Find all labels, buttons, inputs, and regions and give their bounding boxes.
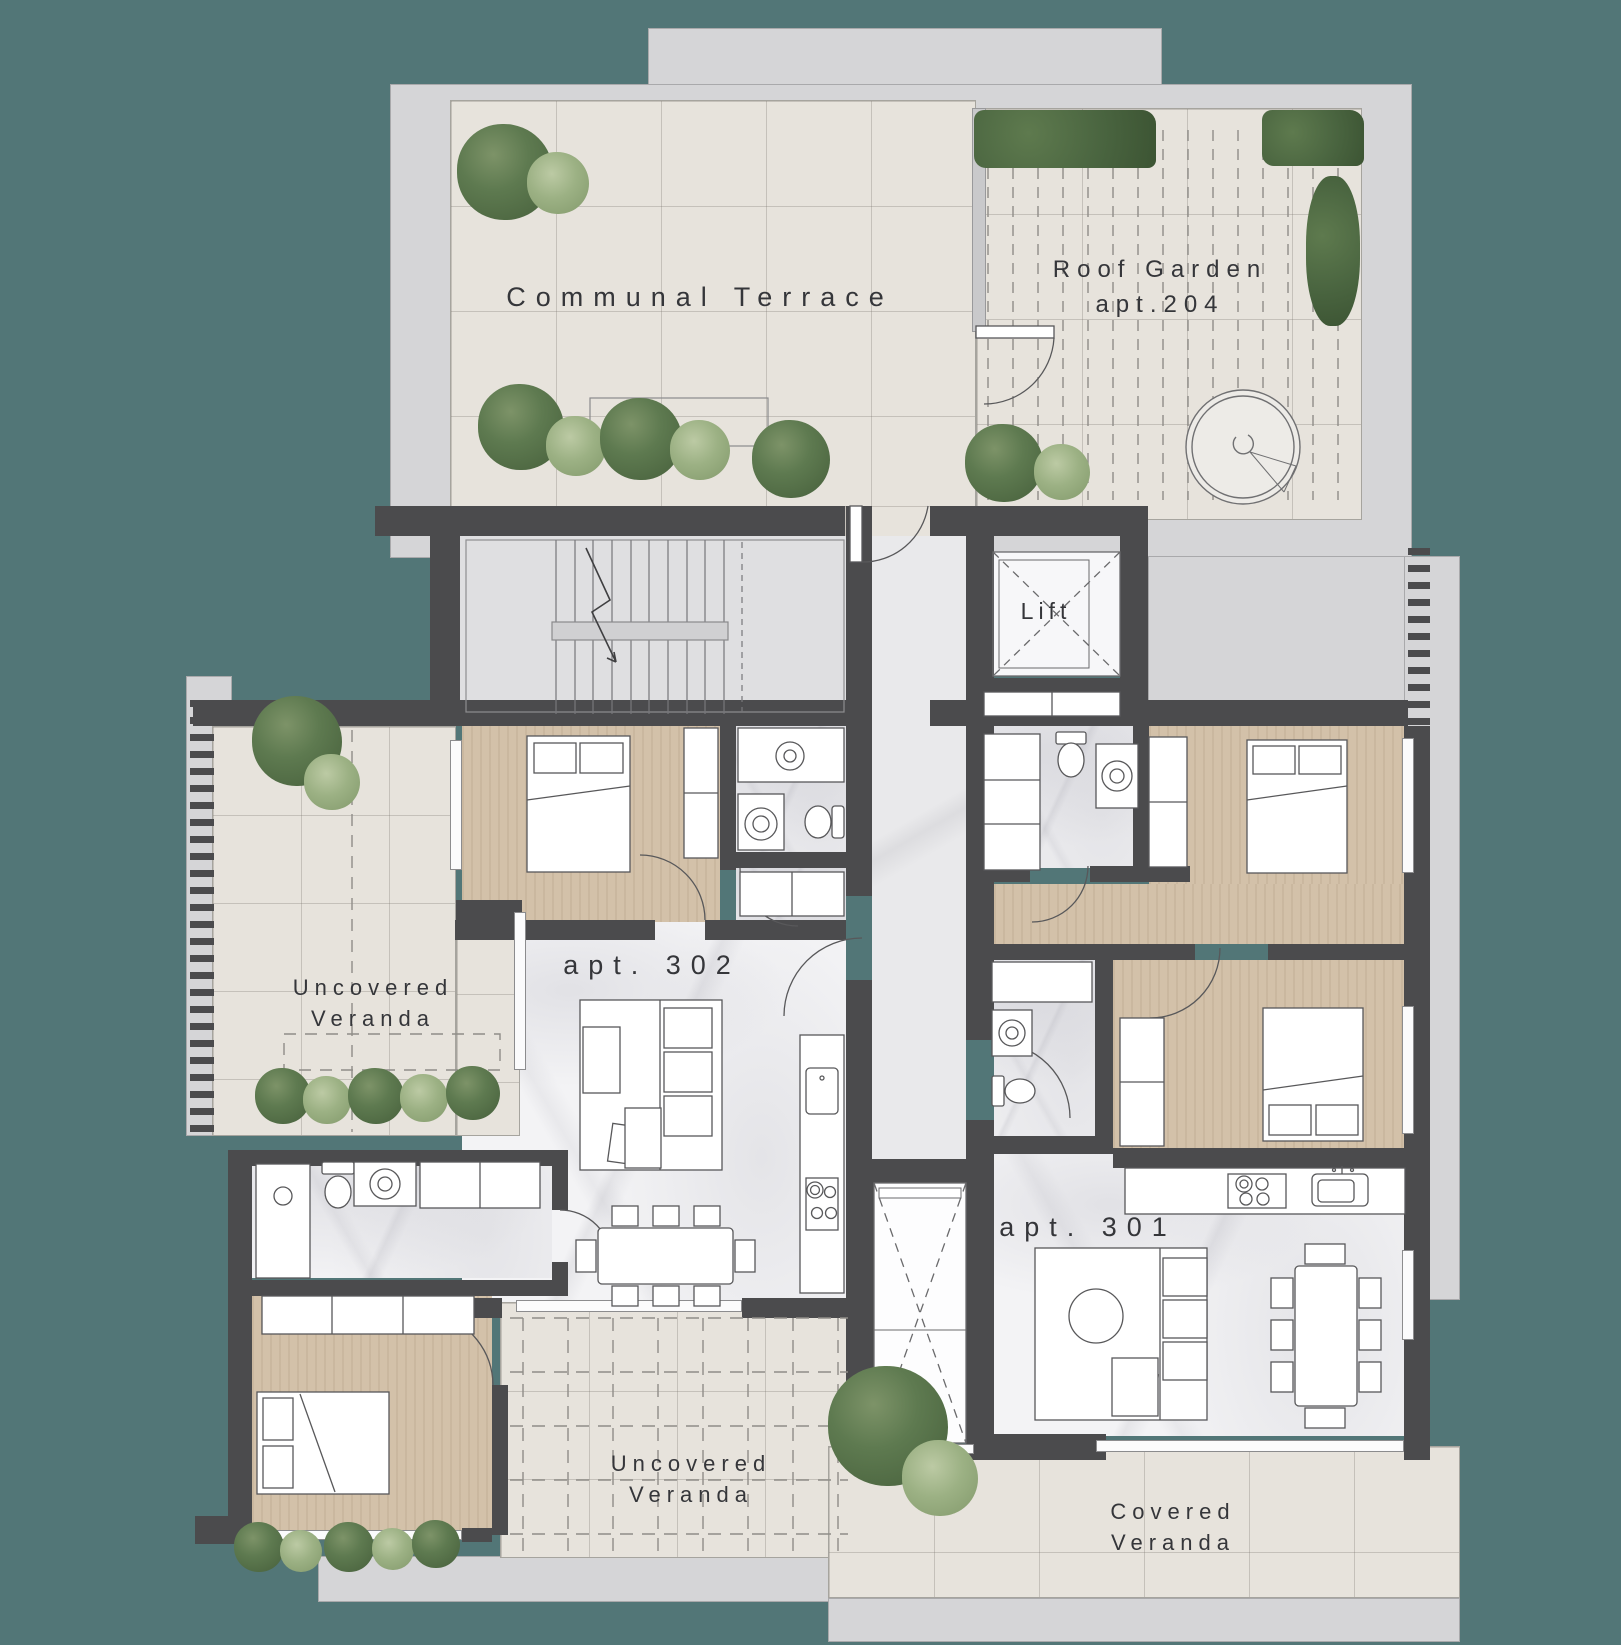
- sofa: [580, 1000, 722, 1170]
- tree: [304, 754, 360, 810]
- tree: [546, 416, 606, 476]
- label-roof-garden-apt: apt.204: [1010, 287, 1310, 322]
- tree: [752, 420, 830, 498]
- kitchen-counter: [1125, 1166, 1405, 1214]
- hedge: [974, 110, 1156, 168]
- planter-bush: [372, 1528, 414, 1570]
- label-roof-garden: Roof Garden apt.204: [1010, 252, 1310, 322]
- wardrobe: [262, 1296, 474, 1334]
- tree: [600, 398, 682, 480]
- label-communal-terrace: Communal Terrace: [506, 282, 894, 313]
- sofa: [1035, 1248, 1207, 1420]
- planter-bush: [324, 1522, 374, 1572]
- label-veranda-bottom: Uncovered Veranda: [560, 1448, 822, 1510]
- linework-layer: [0, 0, 1621, 1645]
- tree: [902, 1440, 978, 1516]
- label-lift: Lift: [1021, 598, 1072, 625]
- bathroom-fixtures: [984, 692, 1138, 870]
- label-apt-301: apt. 301: [999, 1212, 1177, 1243]
- kitchen-counter: [800, 1035, 844, 1293]
- label-veranda-covered: Covered Veranda: [1042, 1496, 1304, 1558]
- label-roof-garden-name: Roof Garden: [1010, 252, 1310, 287]
- planter-bush: [303, 1076, 351, 1124]
- label-line: Uncovered: [242, 972, 504, 1003]
- bed: [257, 1392, 389, 1494]
- hedge: [1262, 110, 1364, 166]
- floor-plan: Communal Terrace Roof Garden apt.204 Lif…: [0, 0, 1621, 1645]
- bathroom-fixtures: [992, 962, 1092, 1106]
- tree: [670, 420, 730, 480]
- label-veranda-left: Uncovered Veranda: [242, 972, 504, 1034]
- label-line: Covered: [1042, 1496, 1304, 1527]
- stairs: [466, 540, 844, 714]
- label-line: Veranda: [242, 1003, 504, 1034]
- bathroom-fixtures: [256, 1162, 540, 1278]
- planter-bush: [412, 1520, 460, 1568]
- label-line: Veranda: [560, 1479, 822, 1510]
- tree: [1034, 444, 1090, 500]
- bathroom-fixtures: [738, 728, 844, 850]
- planter-bush: [400, 1074, 448, 1122]
- veranda-bottom-pergola: [510, 1318, 848, 1552]
- dining-table: [576, 1206, 755, 1306]
- bed: [1263, 1008, 1363, 1141]
- planter-bush: [234, 1522, 284, 1572]
- bed: [527, 736, 630, 872]
- planter-bush: [446, 1066, 500, 1120]
- planter-bush: [348, 1068, 404, 1124]
- dining-table: [1271, 1244, 1381, 1428]
- tree: [965, 424, 1043, 502]
- label-line: Uncovered: [560, 1448, 822, 1479]
- tree: [527, 152, 589, 214]
- label-apt-302: apt. 302: [563, 950, 741, 981]
- planter-bush: [280, 1530, 322, 1572]
- bed: [1247, 740, 1347, 873]
- hedge: [1306, 176, 1360, 326]
- label-line: Veranda: [1042, 1527, 1304, 1558]
- hot-tub: [1186, 390, 1300, 504]
